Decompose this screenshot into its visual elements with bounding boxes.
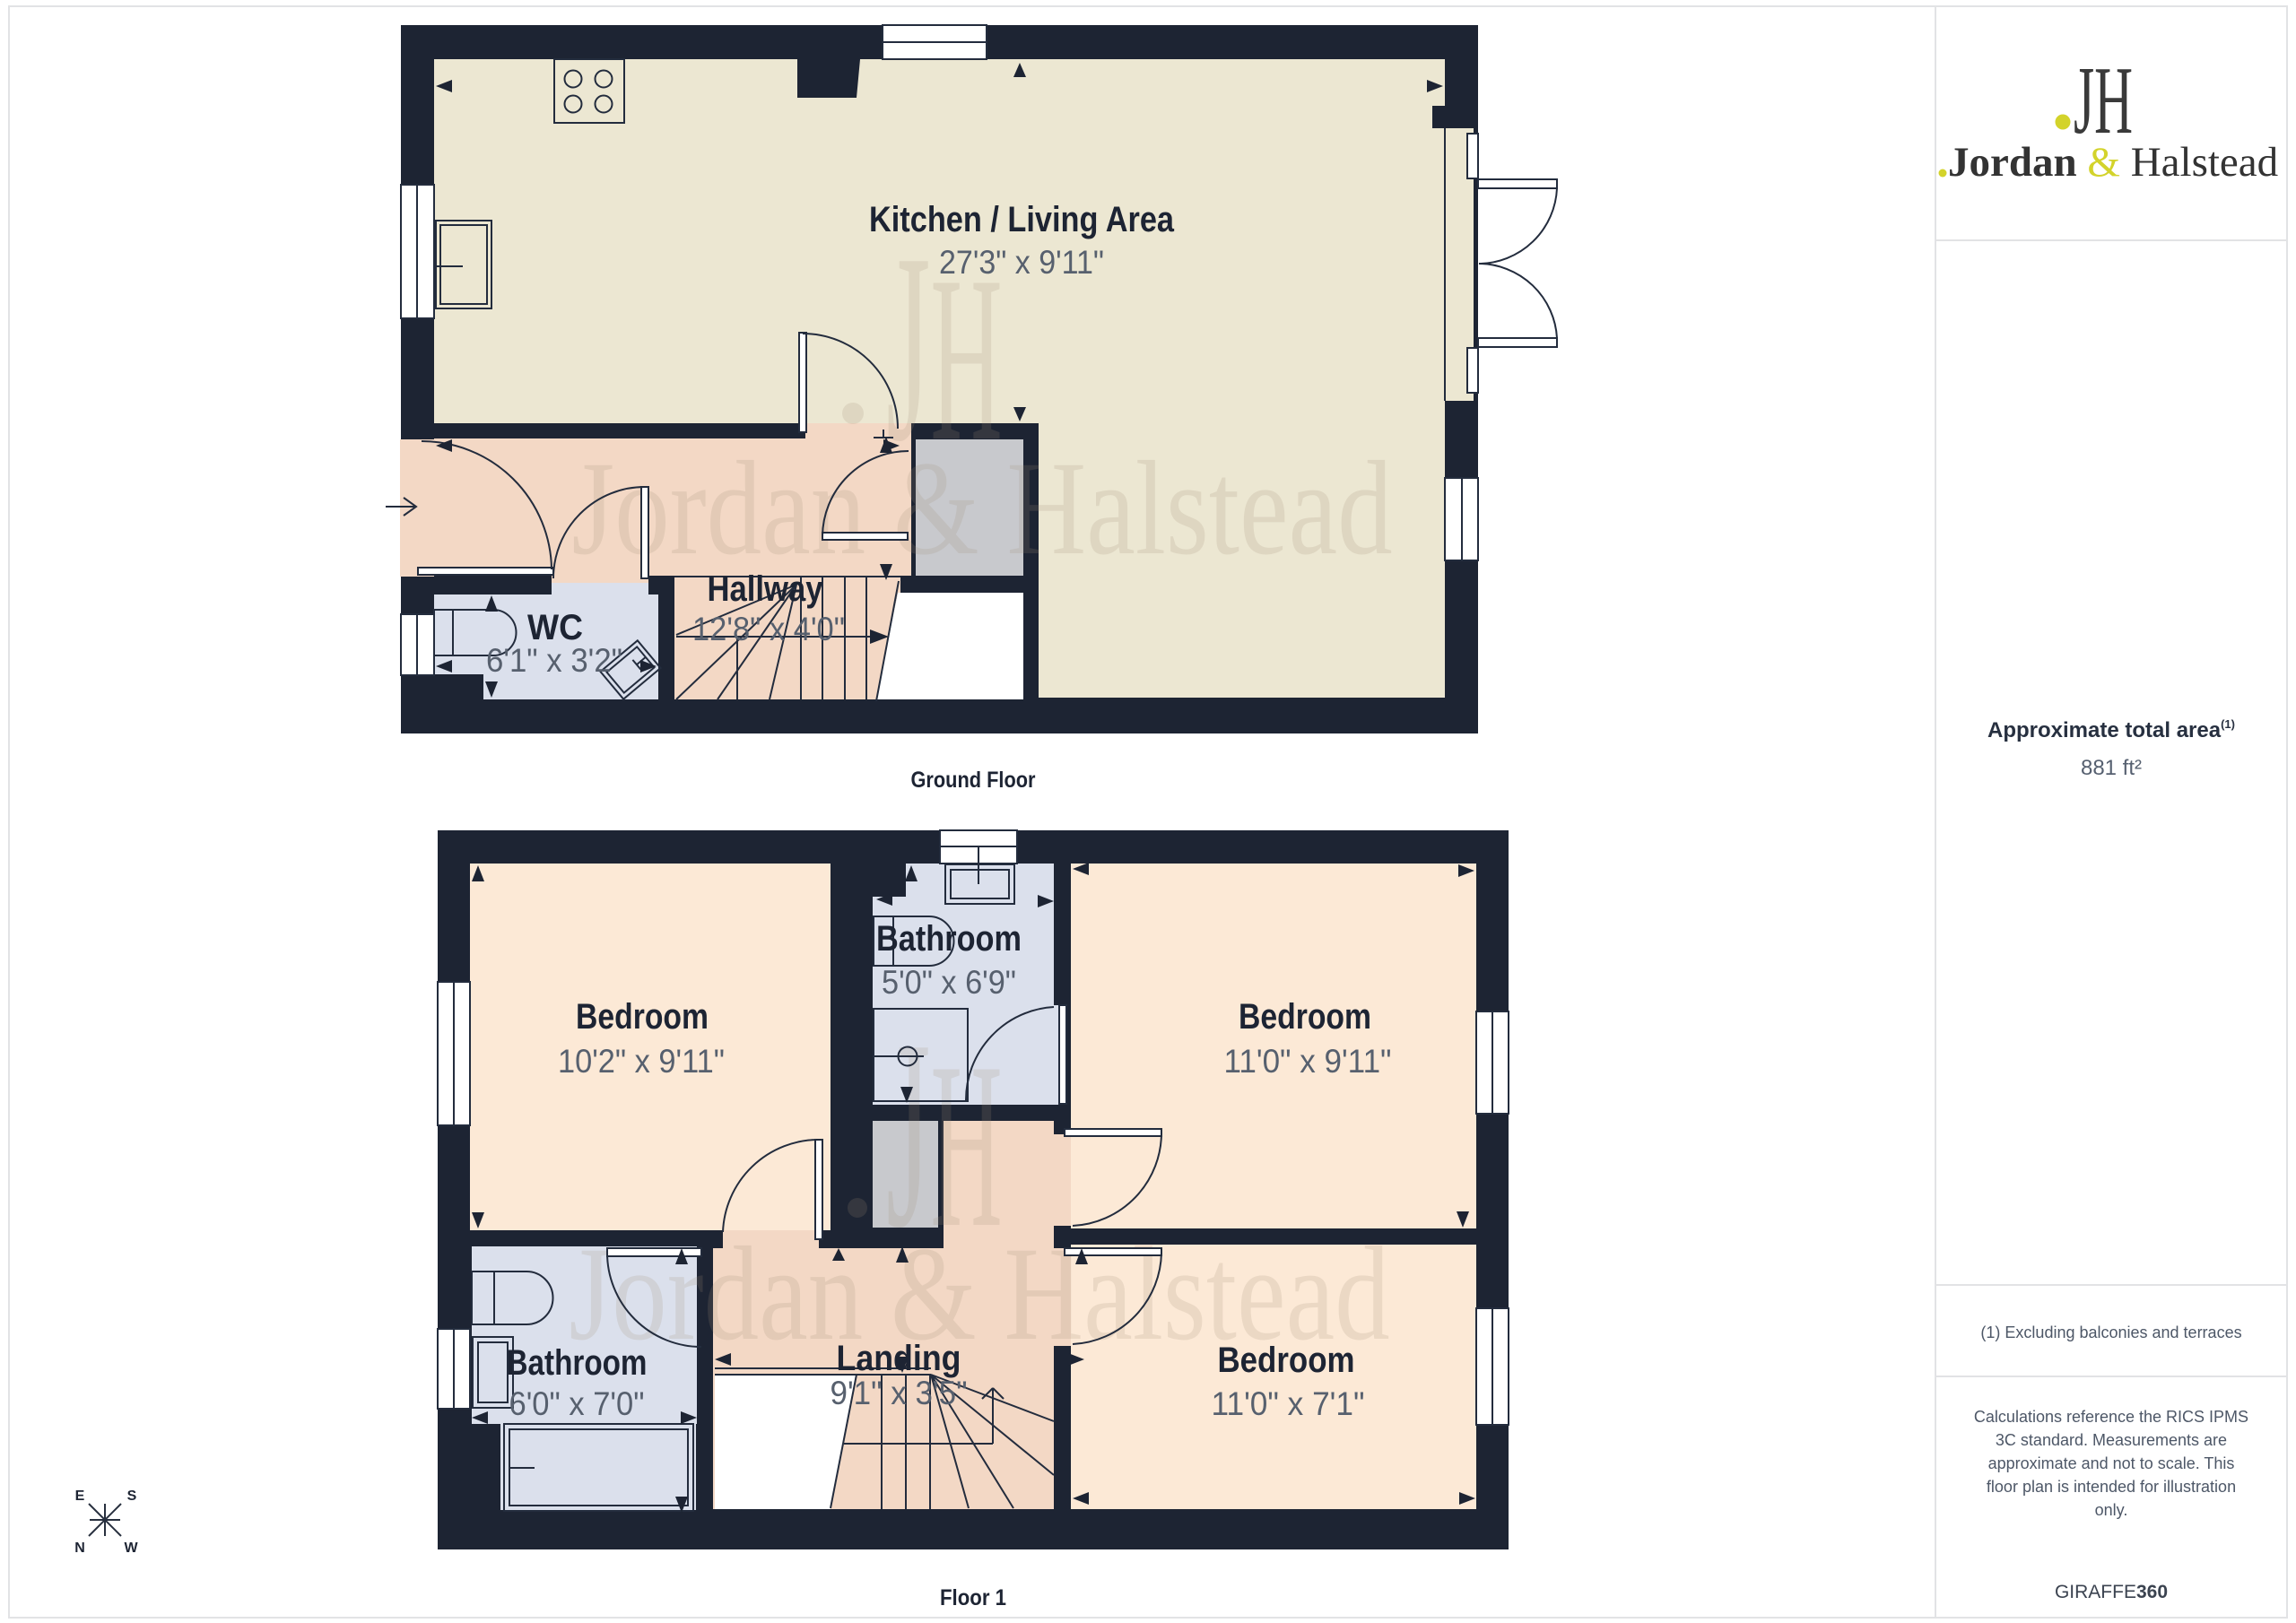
svg-text:Hallway: Hallway bbox=[708, 569, 824, 609]
svg-text:6'0" x 7'0": 6'0" x 7'0" bbox=[509, 1385, 645, 1422]
svg-text:only.: only. bbox=[2095, 1501, 2128, 1519]
svg-text:11'0" x 7'1": 11'0" x 7'1" bbox=[1212, 1385, 1365, 1422]
svg-text:11'0" x 9'11": 11'0" x 9'11" bbox=[1224, 1043, 1392, 1080]
svg-text:Kitchen / Living Area: Kitchen / Living Area bbox=[869, 200, 1175, 239]
svg-text:N: N bbox=[74, 1541, 85, 1556]
svg-text:Bedroom: Bedroom bbox=[1218, 1341, 1355, 1380]
svg-text:floor plan is intended for ill: floor plan is intended for illustration bbox=[1987, 1478, 2236, 1496]
svg-text:E: E bbox=[75, 1488, 85, 1504]
svg-text:12'8" x 4'0": 12'8" x 4'0" bbox=[692, 611, 845, 647]
svg-text:9'1" x 3'5": 9'1" x 3'5" bbox=[831, 1375, 968, 1411]
svg-text:Calculations reference the RIC: Calculations reference the RICS IPMS bbox=[1974, 1408, 2248, 1426]
svg-text:Jordan & Halstead: Jordan & Halstead bbox=[1948, 139, 2278, 186]
svg-text:Jordan & Halstead: Jordan & Halstead bbox=[571, 434, 1392, 583]
svg-text:approximate and not to scale.: approximate and not to scale. This bbox=[1988, 1454, 2235, 1472]
svg-text:Bathroom: Bathroom bbox=[507, 1343, 648, 1383]
svg-text:Approximate total area(1): Approximate total area(1) bbox=[1987, 717, 2235, 742]
svg-text:6'1" x 3'2": 6'1" x 3'2" bbox=[486, 642, 622, 679]
svg-text:W: W bbox=[124, 1541, 138, 1556]
svg-text:S: S bbox=[127, 1488, 137, 1504]
svg-text:JH: JH bbox=[2074, 46, 2133, 153]
svg-text:(1) Excluding balconies and te: (1) Excluding balconies and terraces bbox=[1980, 1324, 2241, 1341]
svg-text:GIRAFFE360: GIRAFFE360 bbox=[2055, 1582, 2168, 1602]
svg-text:5'0" x 6'9": 5'0" x 6'9" bbox=[882, 964, 1016, 1001]
svg-text:Bedroom: Bedroom bbox=[576, 997, 709, 1037]
svg-text:881 ft²: 881 ft² bbox=[2081, 756, 2142, 780]
svg-text:Bedroom: Bedroom bbox=[1239, 997, 1371, 1037]
svg-text:10'2" x 9'11": 10'2" x 9'11" bbox=[558, 1043, 725, 1080]
svg-text:3C standard. Measurements are: 3C standard. Measurements are bbox=[1996, 1431, 2227, 1449]
svg-text:Bathroom: Bathroom bbox=[876, 919, 1022, 959]
svg-text:Ground Floor: Ground Floor bbox=[911, 768, 1036, 793]
svg-text:Floor 1: Floor 1 bbox=[940, 1585, 1006, 1610]
svg-text:27'3" x 9'11": 27'3" x 9'11" bbox=[939, 244, 1104, 281]
svg-text:Landing: Landing bbox=[837, 1339, 961, 1378]
